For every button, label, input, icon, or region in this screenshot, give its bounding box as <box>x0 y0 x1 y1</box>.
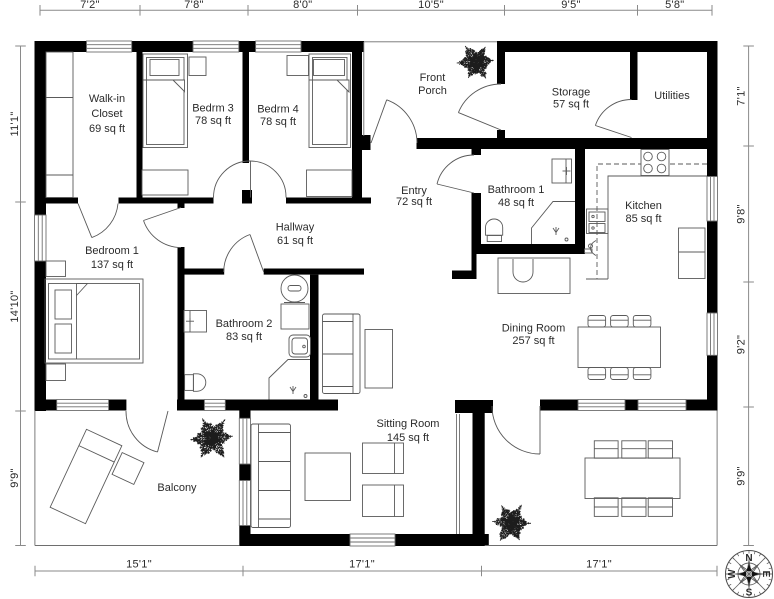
svg-text:9'9": 9'9" <box>736 466 748 485</box>
svg-text:83 sq ft: 83 sq ft <box>226 331 262 343</box>
svg-text:Front: Front <box>420 72 446 84</box>
svg-text:137 sq ft: 137 sq ft <box>91 259 133 271</box>
svg-text:Balcony: Balcony <box>157 482 197 494</box>
svg-text:11'1": 11'1" <box>9 111 21 136</box>
svg-text:7'2": 7'2" <box>80 0 99 11</box>
svg-text:Hallway: Hallway <box>276 222 315 234</box>
svg-text:69 sq ft: 69 sq ft <box>89 123 125 135</box>
svg-text:Walk-in: Walk-in <box>89 93 125 105</box>
svg-text:Closet: Closet <box>91 108 122 120</box>
svg-text:Bedroom 1: Bedroom 1 <box>85 245 139 257</box>
svg-text:9'8": 9'8" <box>736 204 748 223</box>
svg-text:N: N <box>745 553 752 564</box>
svg-text:145 sq ft: 145 sq ft <box>387 432 429 444</box>
svg-text:Utilities: Utilities <box>654 90 690 102</box>
svg-text:Bathroom 1: Bathroom 1 <box>488 184 545 196</box>
svg-text:7'1": 7'1" <box>736 86 748 105</box>
svg-text:W: W <box>727 569 738 579</box>
svg-text:15'1": 15'1" <box>126 559 152 571</box>
svg-text:Bathroom 2: Bathroom 2 <box>216 318 273 330</box>
svg-text:Storage: Storage <box>552 87 591 99</box>
svg-text:9'5": 9'5" <box>561 0 580 11</box>
svg-text:9'9": 9'9" <box>9 468 21 487</box>
svg-text:78 sq ft: 78 sq ft <box>260 116 296 128</box>
svg-text:Porch: Porch <box>418 85 447 97</box>
svg-text:E: E <box>760 571 771 578</box>
svg-text:Bedrm 4: Bedrm 4 <box>257 104 299 116</box>
svg-text:78 sq ft: 78 sq ft <box>195 115 231 127</box>
svg-text:Sitting Room: Sitting Room <box>377 418 440 430</box>
svg-text:61 sq ft: 61 sq ft <box>277 235 313 247</box>
svg-text:48 sq ft: 48 sq ft <box>498 197 534 209</box>
svg-text:9'2": 9'2" <box>736 335 748 354</box>
svg-text:57 sq ft: 57 sq ft <box>553 99 589 111</box>
svg-text:14'10": 14'10" <box>9 290 21 322</box>
svg-text:17'1": 17'1" <box>586 559 612 571</box>
svg-text:72 sq ft: 72 sq ft <box>396 196 432 208</box>
svg-text:17'1": 17'1" <box>349 559 375 571</box>
svg-text:8'0": 8'0" <box>293 0 312 11</box>
svg-text:Bedrm 3: Bedrm 3 <box>192 103 234 115</box>
svg-text:7'8": 7'8" <box>184 0 203 11</box>
svg-text:Kitchen: Kitchen <box>625 200 662 212</box>
svg-text:Dining Room: Dining Room <box>502 323 566 335</box>
svg-text:10'5": 10'5" <box>418 0 444 11</box>
svg-text:5'8": 5'8" <box>665 0 684 11</box>
svg-text:257 sq ft: 257 sq ft <box>512 335 554 347</box>
svg-text:85 sq ft: 85 sq ft <box>625 213 661 225</box>
svg-text:S: S <box>746 588 753 599</box>
